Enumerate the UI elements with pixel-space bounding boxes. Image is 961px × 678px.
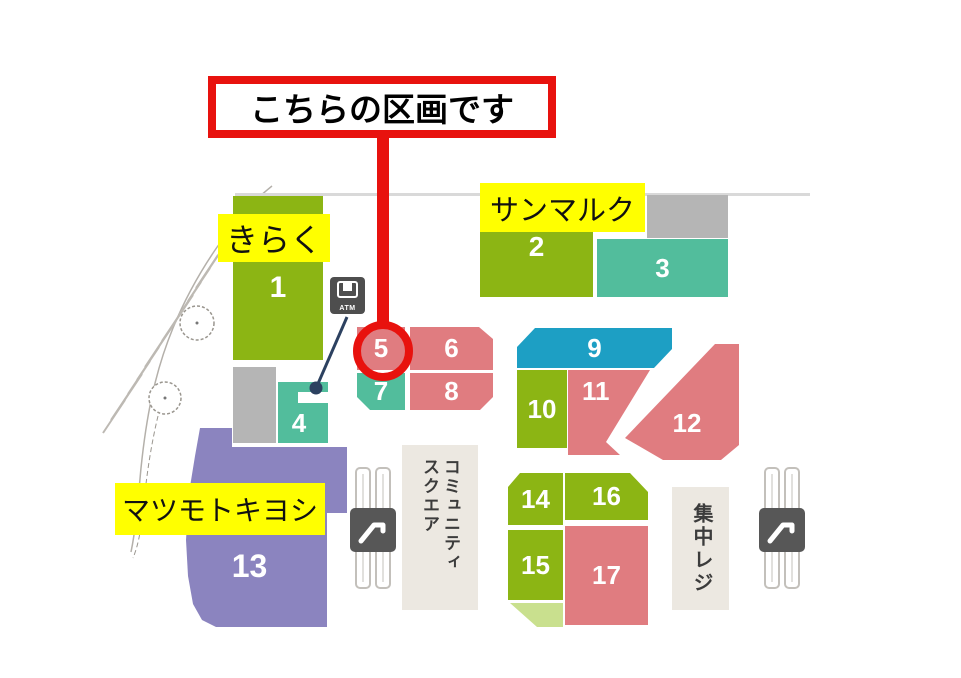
callout-box: こちらの区画です <box>208 76 556 138</box>
highlight-circle <box>353 321 413 381</box>
callout-pointer-line <box>377 136 389 329</box>
floor-map: 1 2 3 4 5 6 7 8 9 10 11 12 13 14 15 16 1… <box>0 0 961 678</box>
